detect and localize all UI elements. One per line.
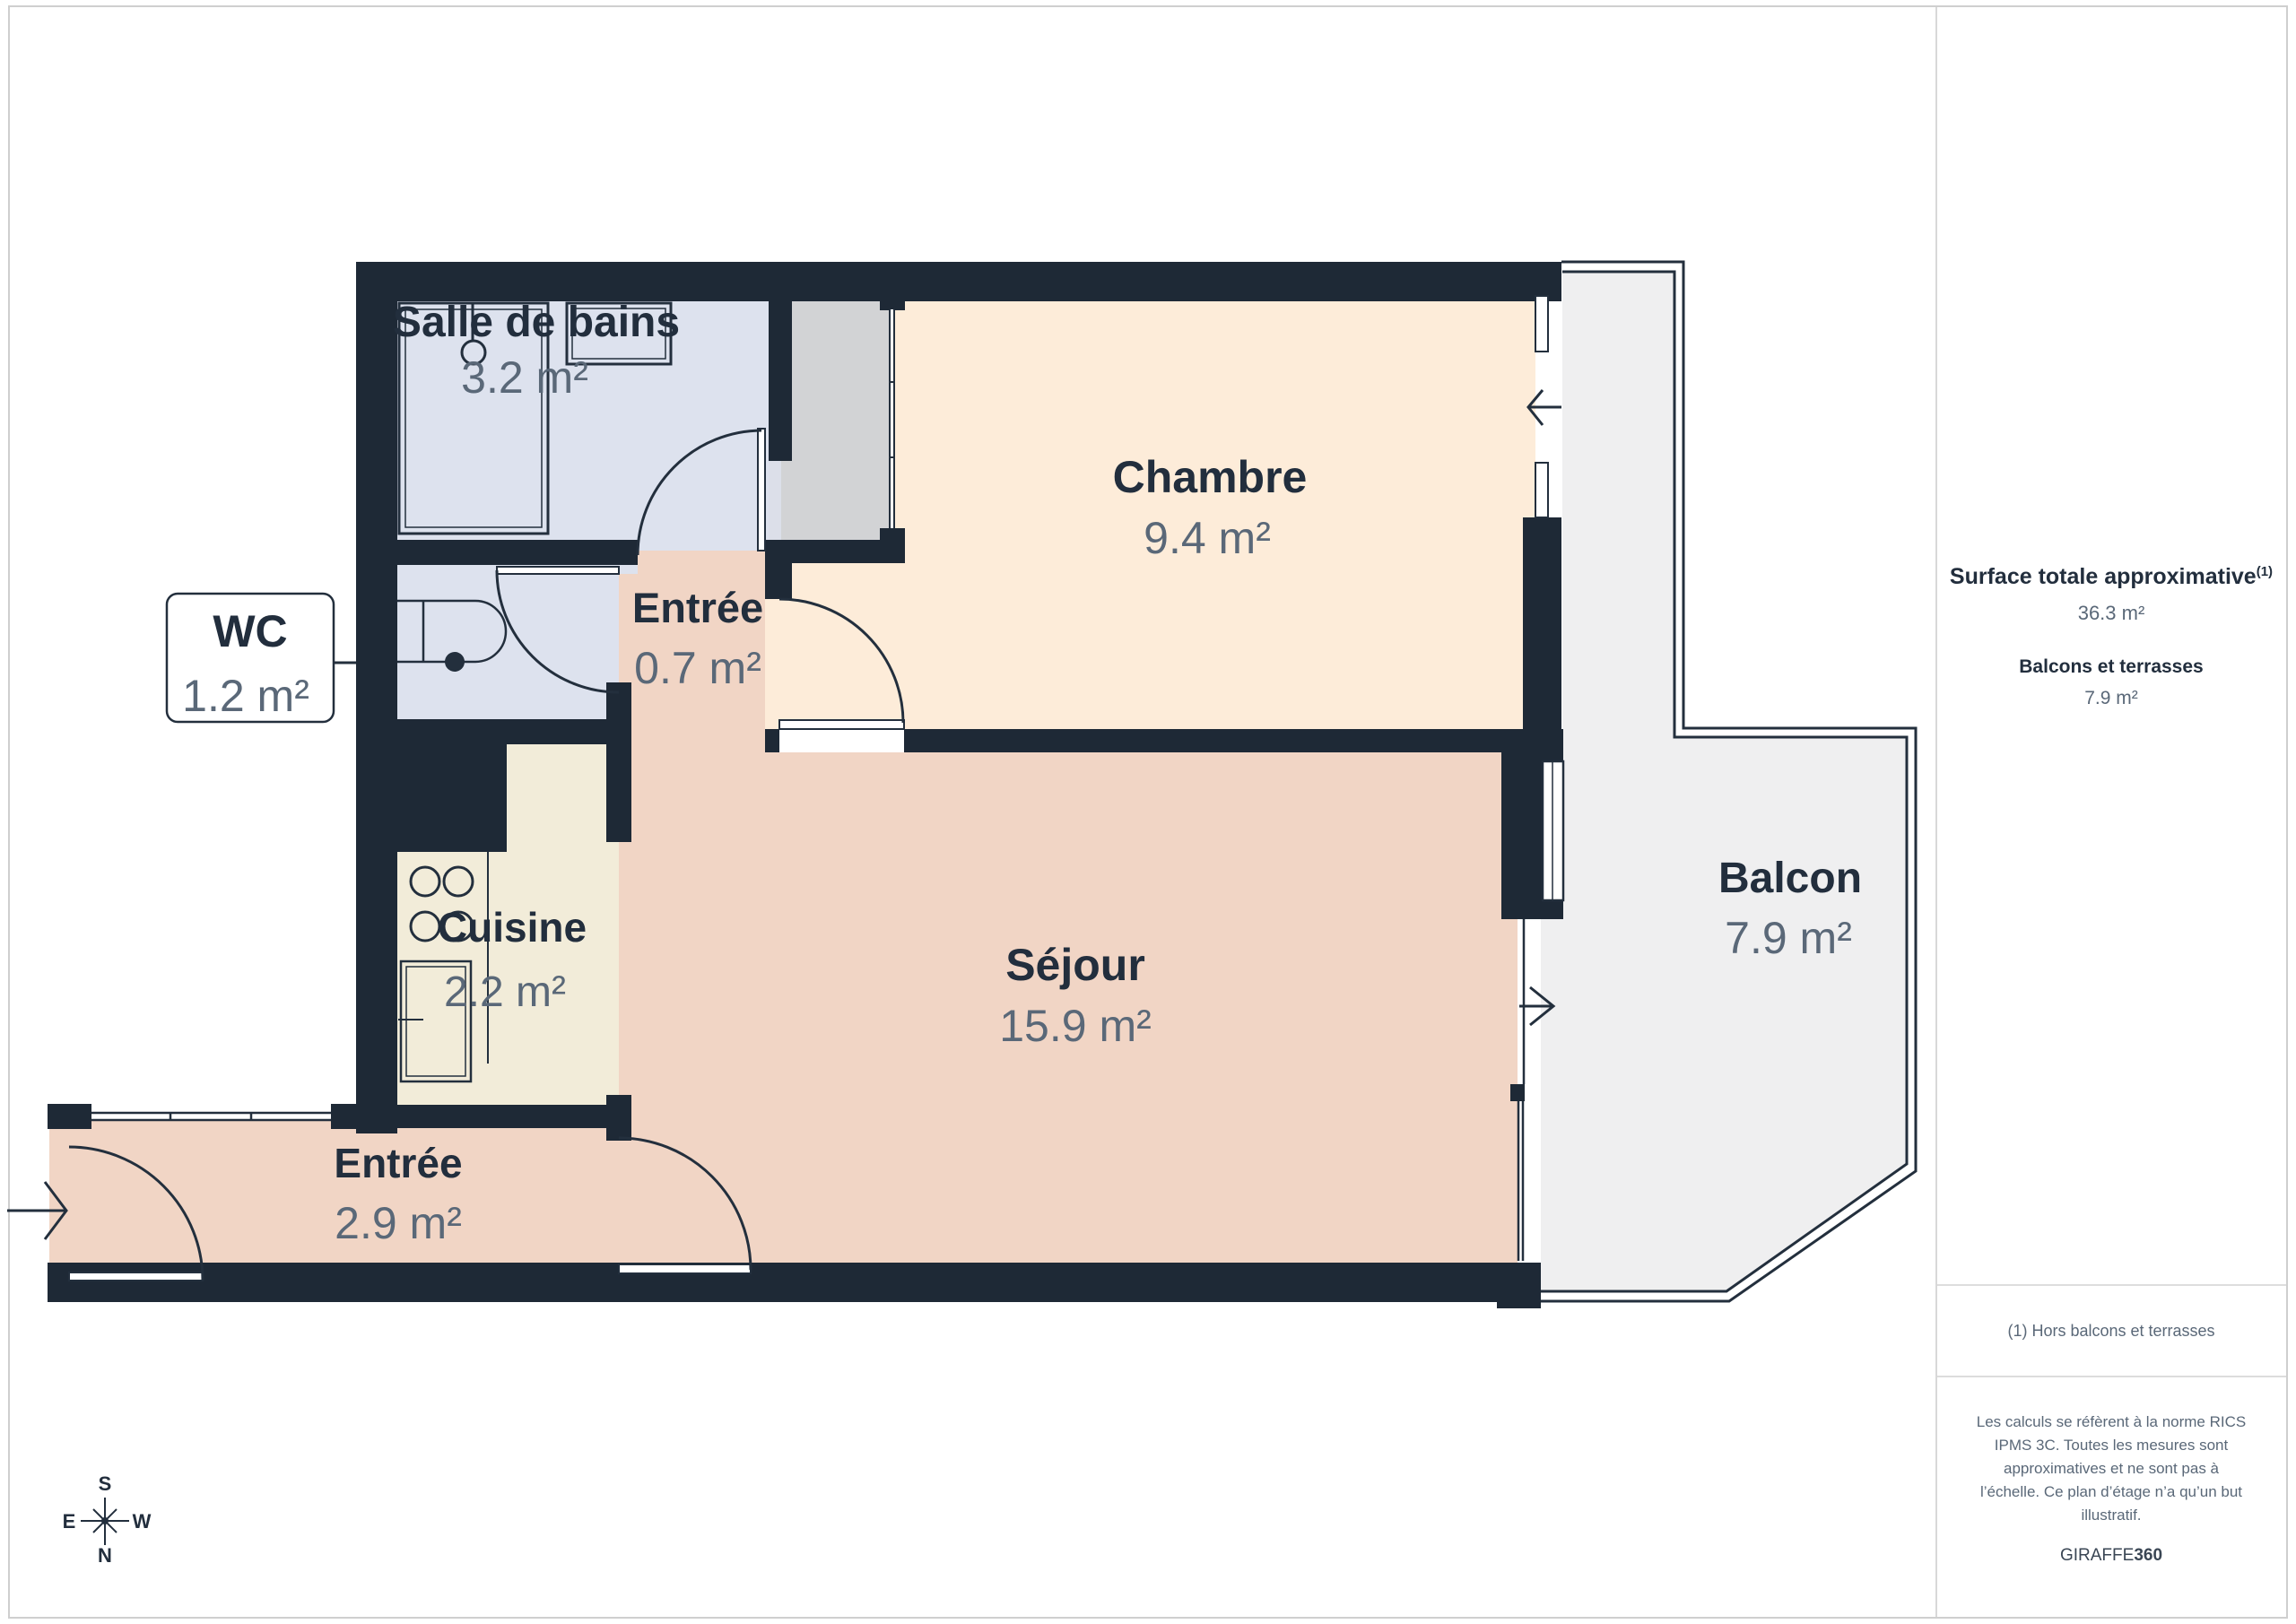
- svg-text:GIRAFFE360: GIRAFFE360: [2060, 1546, 2162, 1565]
- svg-text:Chambre: Chambre: [1113, 452, 1308, 502]
- svg-text:36.3 m²: 36.3 m²: [2078, 602, 2145, 624]
- svg-text:WC: WC: [213, 606, 287, 656]
- svg-text:W: W: [133, 1510, 152, 1533]
- svg-text:illustratif.: illustratif.: [2081, 1507, 2141, 1524]
- svg-text:1.2 m²: 1.2 m²: [182, 671, 309, 721]
- svg-text:(1) Hors balcons et terrasses: (1) Hors balcons et terrasses: [2007, 1322, 2214, 1340]
- svg-text:approximatives et ne sont pas: approximatives et ne sont pas à: [2004, 1460, 2220, 1477]
- svg-text:Surface totale approximative(1: Surface totale approximative(1): [1950, 564, 2273, 589]
- svg-text:15.9 m²: 15.9 m²: [999, 1001, 1152, 1051]
- svg-text:Entrée: Entrée: [632, 584, 763, 631]
- svg-text:Entrée: Entrée: [334, 1140, 462, 1186]
- svg-text:0.7 m²: 0.7 m²: [634, 643, 761, 693]
- svg-text:Cuisine: Cuisine: [438, 904, 587, 951]
- svg-text:7.9 m²: 7.9 m²: [2084, 688, 2138, 708]
- svg-text:E: E: [63, 1510, 76, 1533]
- svg-text:Séjour: Séjour: [1005, 940, 1145, 990]
- svg-text:3.2 m²: 3.2 m²: [461, 352, 588, 403]
- svg-text:Balcon: Balcon: [1718, 855, 1862, 902]
- svg-text:S: S: [99, 1472, 112, 1495]
- svg-text:IPMS 3C. Toutes les mesures so: IPMS 3C. Toutes les mesures sont: [1995, 1437, 2229, 1454]
- svg-text:l’échelle. Ce plan d’étage n’a: l’échelle. Ce plan d’étage n’a qu’un but: [1980, 1483, 2242, 1500]
- svg-text:2.2 m²: 2.2 m²: [444, 968, 566, 1016]
- svg-text:Balcons et terrasses: Balcons et terrasses: [2019, 656, 2203, 677]
- svg-text:7.9 m²: 7.9 m²: [1725, 913, 1852, 963]
- svg-text:Salle de bains: Salle de bains: [393, 299, 680, 346]
- svg-text:Les calculs se réfèrent à la n: Les calculs se réfèrent à la norme RICS: [1977, 1413, 2246, 1430]
- svg-text:N: N: [98, 1544, 112, 1567]
- svg-text:2.9 m²: 2.9 m²: [335, 1198, 462, 1248]
- svg-text:9.4 m²: 9.4 m²: [1144, 513, 1271, 563]
